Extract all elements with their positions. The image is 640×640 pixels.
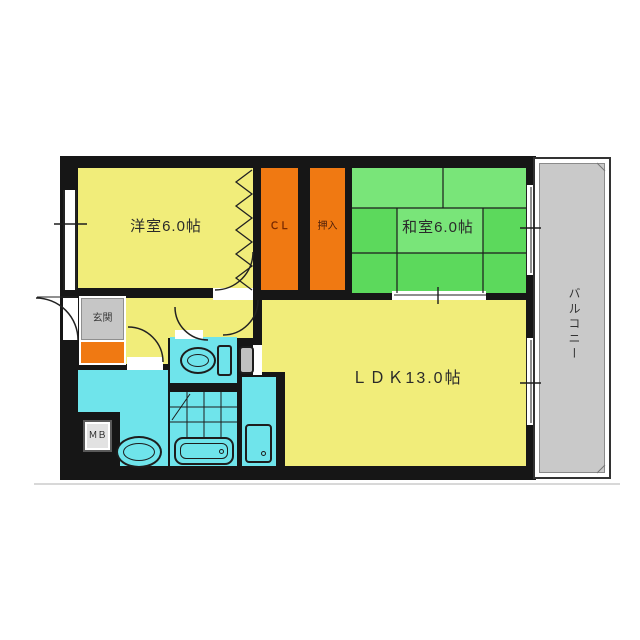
tatami-mat-top (352, 168, 526, 208)
label-western-room: 洋室6.0帖 (96, 219, 236, 234)
label-japanese-room: 和室6.0帖 (368, 220, 508, 235)
kitchen-sink (245, 424, 272, 463)
entrance-floor (81, 342, 124, 363)
japanese-sliding-door-gap (392, 291, 486, 300)
floorplan-canvas: バルコニー 洋室 (0, 0, 640, 640)
window-western-left (63, 190, 77, 290)
label-ldk: ＬＤＫ13.0帖 (312, 371, 502, 387)
washbasin (116, 436, 162, 468)
toilet-bowl-inner (187, 354, 209, 367)
washbasin-inner (123, 443, 155, 461)
ground-line (34, 483, 620, 485)
label-closet-cl: ＣＬ (261, 222, 298, 232)
bathtub-drain (219, 449, 224, 454)
label-entrance: 玄関 (81, 314, 124, 324)
toilet-bowl (180, 347, 216, 374)
balcony: バルコニー (533, 157, 611, 479)
entrance-door-gap (63, 298, 78, 340)
corridor-ldk-door-gap (253, 345, 262, 375)
western-door-gap (213, 288, 253, 300)
label-oshiire: 押入 (308, 222, 347, 232)
balcony-label: バルコニー (564, 287, 580, 362)
water-tank-unit (239, 346, 254, 374)
washroom-door-gap (127, 357, 163, 370)
toilet-tank (217, 345, 232, 376)
bathtub (174, 437, 234, 465)
room-ldk-upper (262, 300, 526, 372)
kitchen-sink-faucet (261, 451, 266, 456)
toilet-door-gap (175, 330, 203, 339)
label-meter-box: ＭＢ (83, 431, 112, 440)
